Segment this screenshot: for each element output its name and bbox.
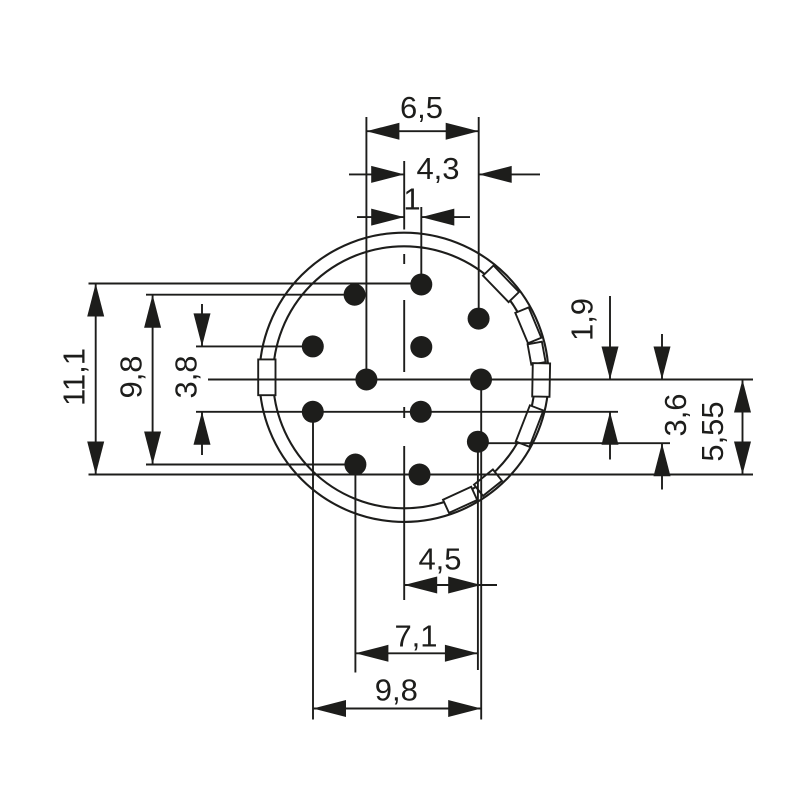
svg-text:9,8: 9,8 bbox=[375, 673, 418, 708]
svg-text:9,8: 9,8 bbox=[113, 355, 148, 398]
svg-text:1,9: 1,9 bbox=[565, 298, 600, 341]
svg-text:1: 1 bbox=[403, 182, 420, 217]
svg-text:3,8: 3,8 bbox=[169, 355, 204, 398]
svg-text:11,1: 11,1 bbox=[56, 348, 91, 406]
svg-text:5,55: 5,55 bbox=[695, 401, 730, 461]
svg-text:7,1: 7,1 bbox=[394, 619, 437, 654]
svg-text:4,3: 4,3 bbox=[416, 151, 459, 186]
svg-text:3,6: 3,6 bbox=[658, 393, 693, 436]
svg-text:6,5: 6,5 bbox=[400, 90, 443, 125]
svg-text:4,5: 4,5 bbox=[418, 542, 461, 577]
